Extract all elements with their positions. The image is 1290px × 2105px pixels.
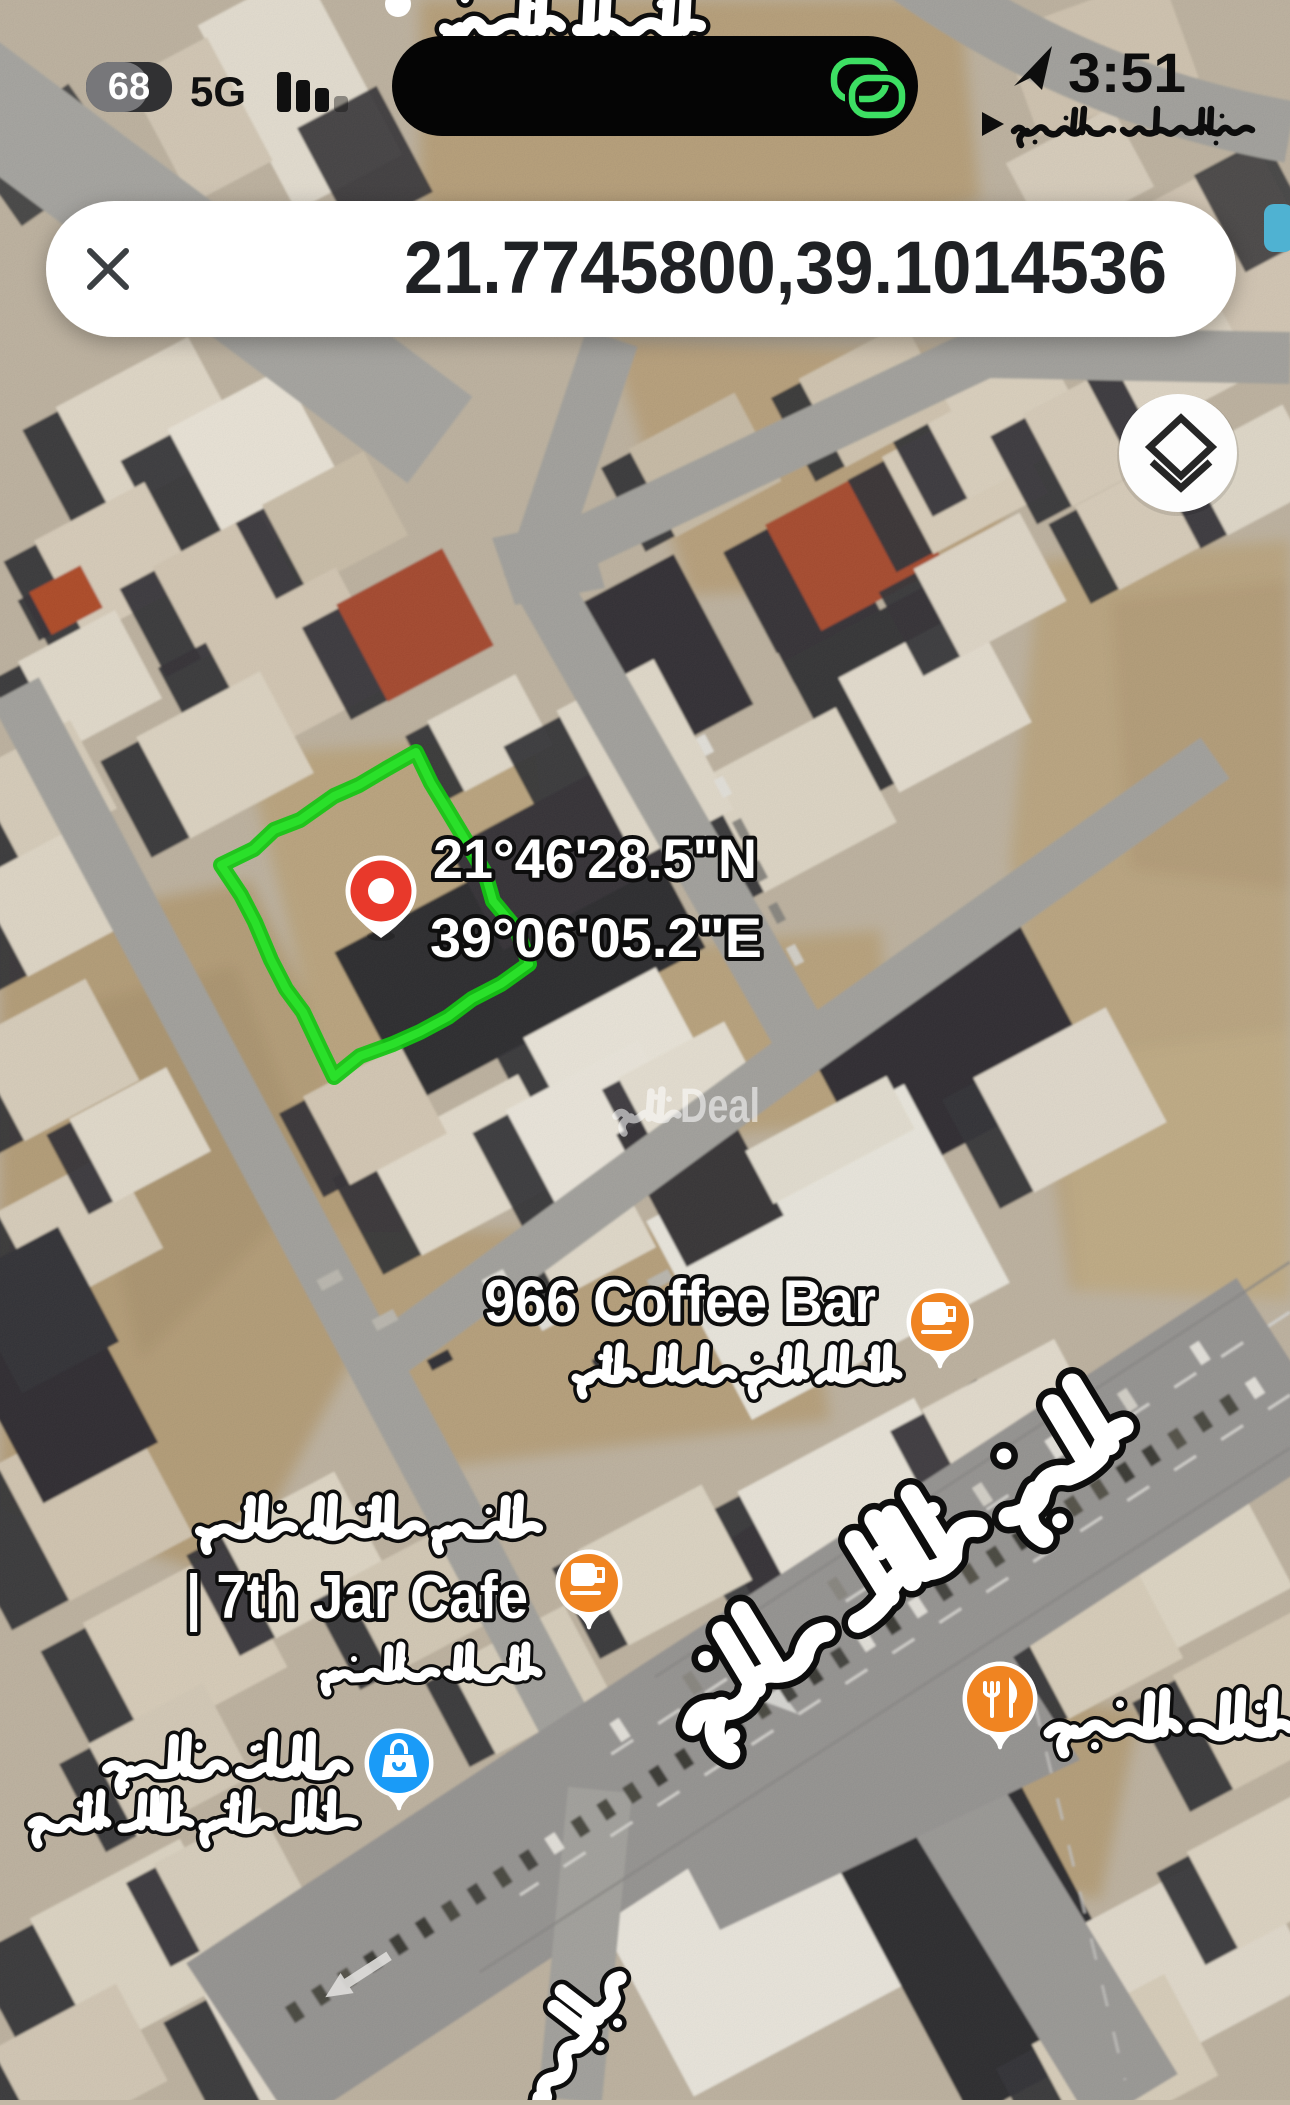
svg-text:Deal: Deal: [680, 1080, 760, 1133]
svg-text:| 7th Jar Cafe: | 7th Jar Cafe: [186, 1563, 528, 1633]
svg-text:21.7745800,39.1014536: 21.7745800,39.1014536: [404, 226, 1167, 309]
svg-text:39°06'05.2"E: 39°06'05.2"E: [430, 906, 762, 969]
svg-text:3:51: 3:51: [1068, 41, 1186, 104]
svg-text:5G: 5G: [190, 68, 246, 115]
svg-text:68: 68: [108, 66, 150, 108]
svg-text:21°46'28.5"N: 21°46'28.5"N: [433, 827, 757, 890]
svg-text:966 Coffee Bar: 966 Coffee Bar: [484, 1268, 876, 1335]
